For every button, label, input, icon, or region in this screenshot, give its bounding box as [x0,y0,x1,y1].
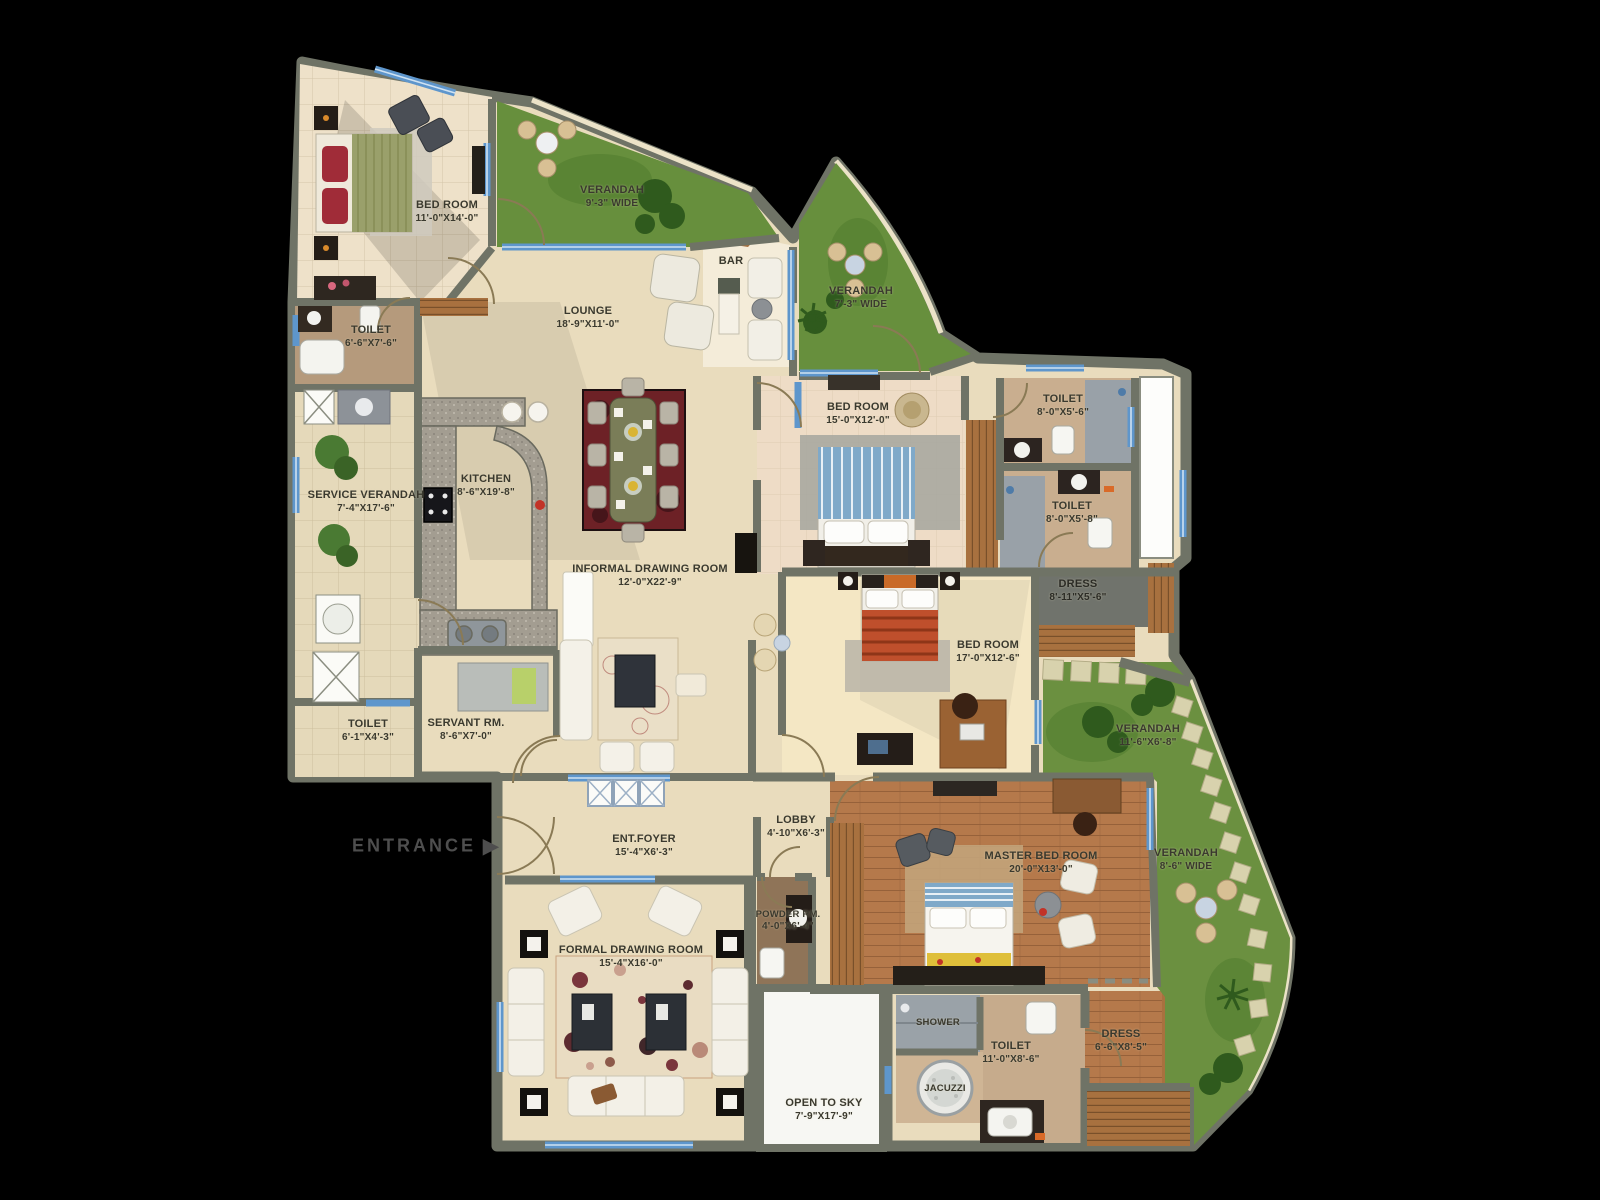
room-label-servant-room: SERVANT RM.8'-6"X7'-0" [428,717,505,743]
room-label-verandah-1: VERANDAH9'-3" WIDE [580,184,644,210]
floor-plan [0,0,1600,1200]
room-label-bedroom-1: BED ROOM11'-0"X14'-0" [416,199,479,225]
room-label-bar: BAR [719,255,743,269]
room-label-service-verandah: SERVICE VERANDAH7'-4"X17'-6" [308,489,425,515]
room-label-lounge: LOUNGE18'-9"X11'-0" [557,305,620,331]
room-label-toilet-small: TOILET6'-1"X4'-3" [342,718,394,744]
floor-plan-canvas: BED ROOM11'-0"X14'-0" VERANDAH9'-3" WIDE… [0,0,1600,1200]
room-label-verandah-3: VERANDAH11'-6"X6'-8" [1116,723,1180,749]
room-label-verandah-4: VERANDAH8'-6" WIDE [1154,847,1218,873]
entrance-label: ENTRANCE▶ [352,836,498,857]
foyer-mats [588,780,664,806]
room-label-shower: SHOWER [916,1017,960,1029]
room-label-dress-2: DRESS6'-6"X8'-5" [1095,1028,1147,1054]
room-label-verandah-2: VERANDAH7'-3" WIDE [829,285,893,311]
room-label-jacuzzi: JACUZZI [924,1083,966,1095]
room-label-lobby: LOBBY4'-10"X6'-3" [767,814,825,840]
room-label-informal-drawing-room: INFORMAL DRAWING ROOM12'-0"X22'-9" [572,563,728,589]
servant-furniture [458,663,548,711]
room-label-toilet-3: TOILET8'-0"X5'-8" [1046,500,1098,526]
room-label-bedroom-3: BED ROOM17'-0"X12'-6" [956,639,1020,665]
open-to-sky-floor [760,988,883,1148]
room-label-powder-room: POWDER RM.4'-0"X6'-4" [756,909,821,933]
room-label-dress-1: DRESS8'-11"X5'-6" [1049,578,1106,604]
room-label-master-bedroom: MASTER BED ROOM20'-0"X13'-0" [985,850,1098,876]
cooktop [424,488,452,522]
room-label-toilet-4: TOILET11'-0"X8'-6" [982,1040,1039,1066]
bar-stool [502,402,522,422]
room-label-formal-drawing-room: FORMAL DRAWING ROOM15'-4"X16'-0" [559,944,703,970]
room-label-open-to-sky: OPEN TO SKY7'-9"X17'-9" [785,1097,862,1123]
wardrobe-band [966,420,998,572]
dining-set [583,378,685,542]
bar-stool [528,402,548,422]
room-label-kitchen: KITCHEN8'-6"X19'-8" [457,473,515,499]
deck-bottom [1087,1091,1190,1146]
shaft [1140,377,1173,558]
room-label-toilet-1: TOILET6'-6"X7'-6" [345,324,397,350]
room-label-bedroom-2: BED ROOM15'-0"X12'-0" [826,401,890,427]
room-label-toilet-2: TOILET8'-0"X5'-6" [1037,393,1089,419]
room-label-ent-foyer: ENT.FOYER15'-4"X6'-3" [612,833,676,859]
entrance-arrow-icon: ▶ [483,836,498,856]
